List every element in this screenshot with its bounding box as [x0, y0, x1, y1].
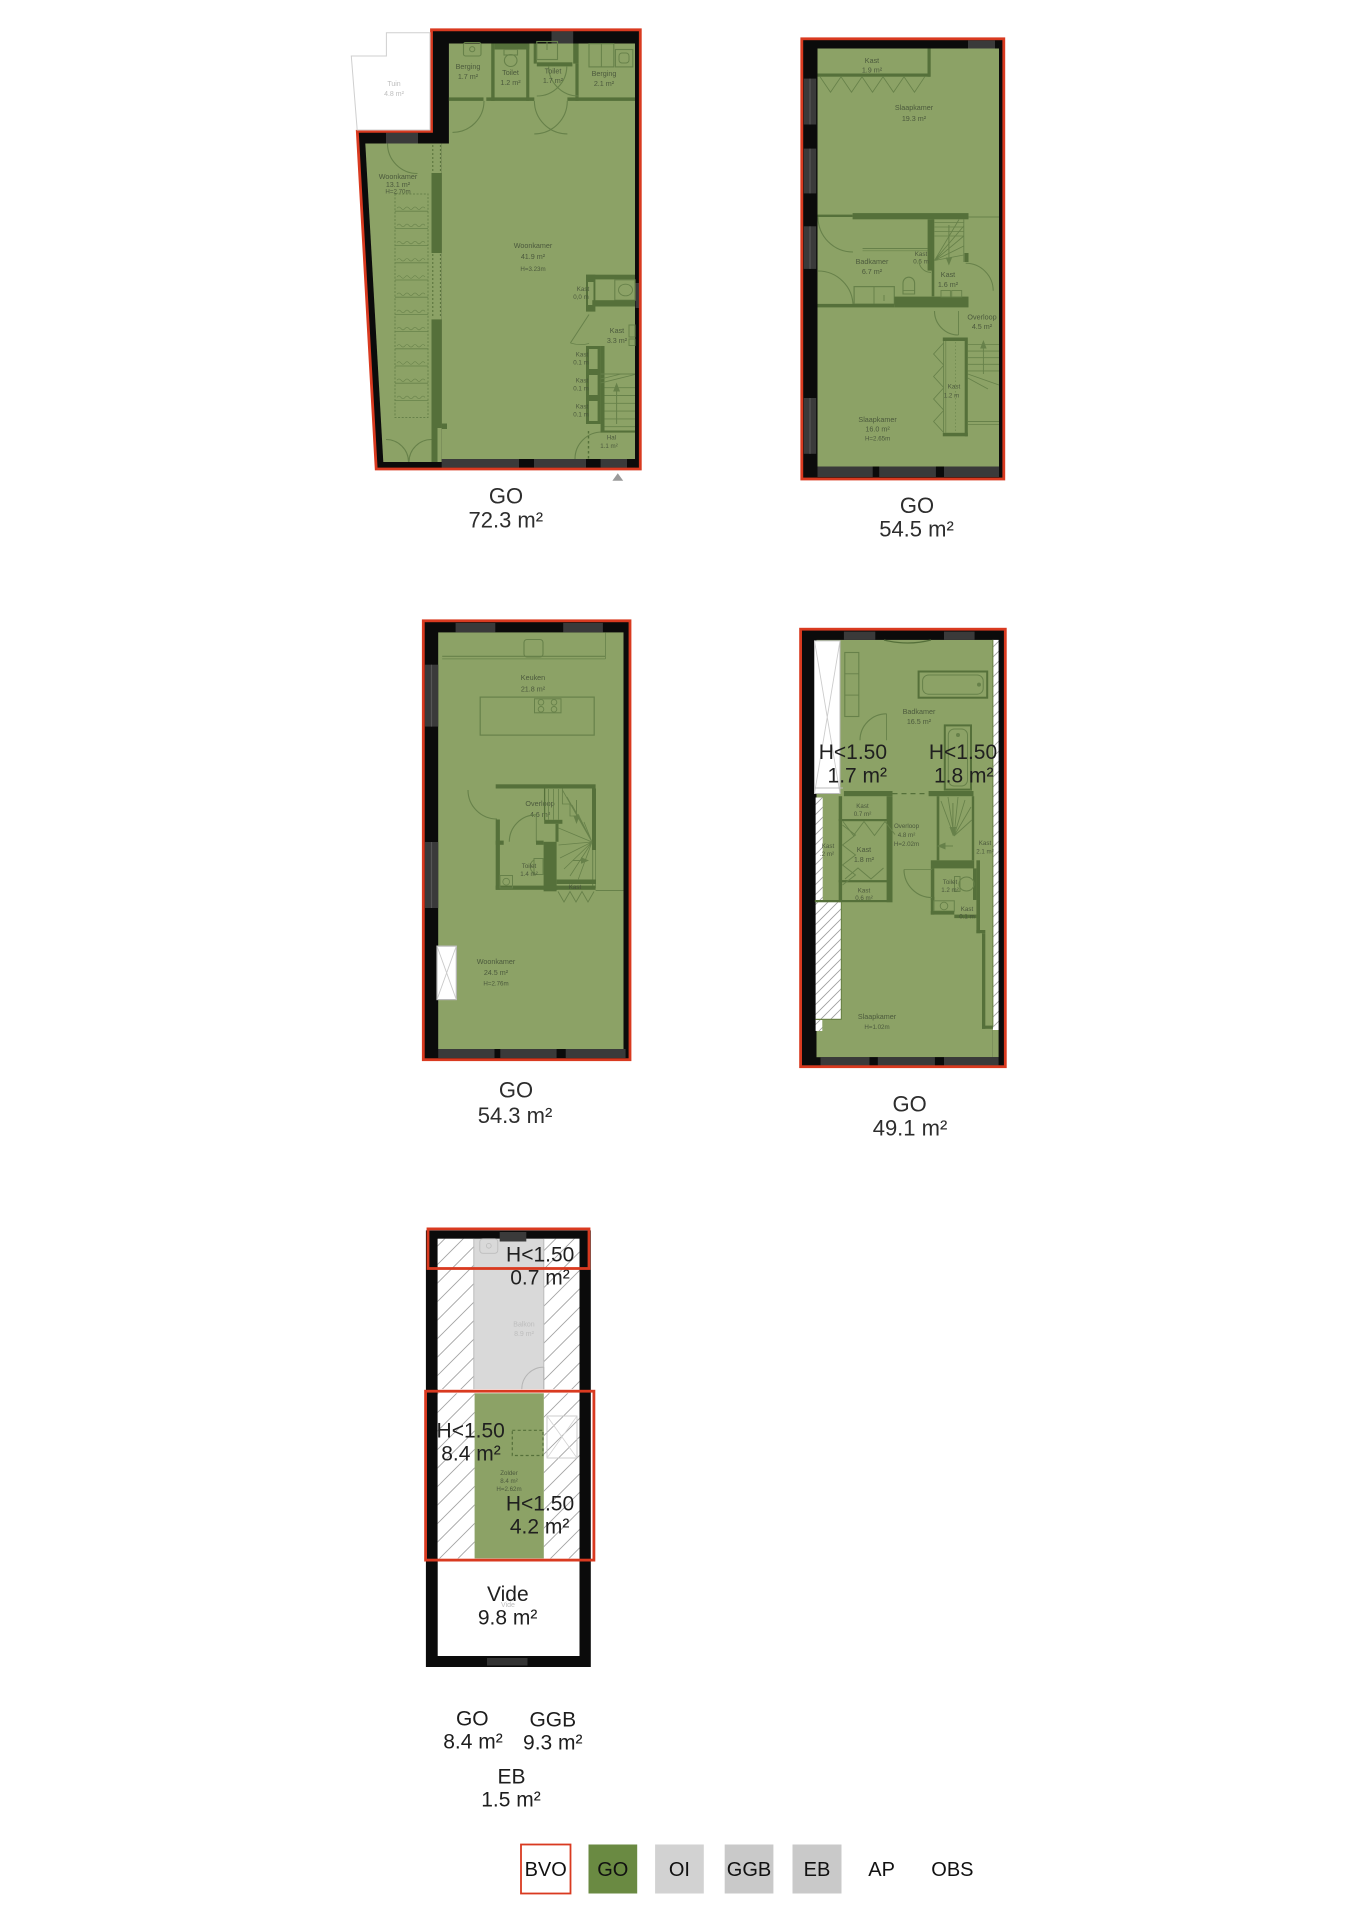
svg-text:0.6 m²: 0.6 m²: [855, 895, 873, 902]
svg-text:Kast: Kast: [865, 56, 879, 65]
svg-text:1.1 m²: 1.1 m²: [600, 443, 618, 450]
svg-text:0.1 m: 0.1 m: [573, 360, 588, 367]
svg-text:4.8 m²: 4.8 m²: [898, 832, 916, 839]
svg-text:Kast: Kast: [979, 840, 992, 847]
svg-text:GO: GO: [456, 1708, 489, 1731]
svg-text:H<1.50: H<1.50: [506, 1244, 574, 1267]
svg-text:Toilet: Toilet: [545, 67, 562, 76]
svg-text:Berging: Berging: [456, 62, 481, 71]
svg-text:1.5 m²: 1.5 m²: [481, 1789, 541, 1812]
svg-text:H=2.76m: H=2.76m: [483, 981, 508, 988]
svg-text:H=2.65m: H=2.65m: [865, 436, 890, 443]
svg-text:4.5 m²: 4.5 m²: [972, 322, 993, 331]
svg-text:0.1 m: 0.1 m: [959, 914, 974, 921]
svg-text:0.1 m: 0.1 m: [573, 412, 588, 419]
svg-text:0.7 m²: 0.7 m²: [854, 811, 872, 818]
svg-text:1.8 m²: 1.8 m²: [934, 764, 994, 787]
svg-text:0,0 m: 0,0 m: [573, 294, 588, 301]
svg-text:Kast: Kast: [577, 286, 590, 293]
svg-text:4.8 m²: 4.8 m²: [384, 91, 405, 98]
svg-text:GO: GO: [900, 493, 934, 518]
svg-text:GO: GO: [597, 1859, 628, 1881]
svg-text:1.4 m²: 1.4 m²: [520, 871, 538, 878]
svg-text:H<1.50: H<1.50: [437, 1420, 505, 1443]
svg-text:GO: GO: [489, 484, 523, 509]
svg-text:Kast: Kast: [915, 251, 928, 258]
svg-text:0.1 m: 0.1 m: [573, 386, 588, 393]
svg-text:EB: EB: [804, 1859, 831, 1881]
svg-text:41.9 m²: 41.9 m²: [521, 252, 546, 261]
svg-text:24.5 m²: 24.5 m²: [484, 968, 509, 977]
svg-text:Vide: Vide: [487, 1583, 529, 1606]
svg-text:OBS: OBS: [931, 1859, 973, 1881]
svg-text:1.2 m²: 1.2 m²: [500, 78, 521, 87]
svg-text:8.4 m²: 8.4 m²: [443, 1731, 503, 1754]
svg-text:Overloop: Overloop: [525, 799, 554, 808]
svg-text:3.3 m²: 3.3 m²: [607, 336, 628, 345]
svg-text:16.5 m²: 16.5 m²: [907, 717, 932, 726]
svg-text:1.6 m²: 1.6 m²: [938, 280, 959, 289]
svg-text:Hal: Hal: [607, 435, 616, 442]
svg-text:GO: GO: [892, 1092, 926, 1117]
svg-text:0.7 m²: 0.7 m²: [510, 1267, 570, 1290]
svg-text:49.1 m²: 49.1 m²: [873, 1115, 948, 1140]
svg-text:2.1 m²: 2.1 m²: [594, 79, 615, 88]
svg-text:Overloop: Overloop: [894, 823, 920, 830]
svg-text:GGB: GGB: [727, 1859, 771, 1881]
svg-text:Slaapkamer: Slaapkamer: [858, 1012, 897, 1021]
svg-text:6.7 m²: 6.7 m²: [862, 267, 883, 276]
svg-text:1.7 m²: 1.7 m²: [828, 764, 888, 787]
svg-text:9.3 m²: 9.3 m²: [523, 1732, 583, 1755]
svg-text:4.2 m²: 4.2 m²: [510, 1516, 570, 1539]
svg-text:Woonkamer: Woonkamer: [477, 957, 516, 966]
svg-text:Toilet: Toilet: [943, 879, 958, 886]
svg-text:1.9 m²: 1.9 m²: [862, 66, 883, 75]
svg-text:H=3.23m: H=3.23m: [520, 266, 545, 273]
svg-text:H<1.50: H<1.50: [506, 1493, 574, 1516]
svg-text:Kast: Kast: [856, 803, 869, 810]
svg-text:8.4 m²: 8.4 m²: [441, 1443, 501, 1466]
svg-text:1.2 m²: 1.2 m²: [941, 887, 959, 894]
svg-text:OI: OI: [669, 1859, 690, 1881]
svg-text:H=2.02m: H=2.02m: [894, 841, 919, 848]
svg-text:GO: GO: [499, 1078, 533, 1103]
svg-text:Kast: Kast: [948, 384, 961, 391]
svg-text:8.4 m²: 8.4 m²: [500, 1478, 518, 1485]
svg-text:54.5 m²: 54.5 m²: [879, 517, 954, 542]
svg-text:Kast: Kast: [857, 845, 871, 854]
svg-text:Kast: Kast: [569, 884, 582, 891]
svg-text:9.8 m²: 9.8 m²: [478, 1607, 538, 1630]
svg-text:Kast: Kast: [576, 352, 589, 359]
svg-text:72.3 m²: 72.3 m²: [469, 508, 544, 533]
svg-text:Kast: Kast: [858, 888, 871, 895]
svg-text:BVO: BVO: [525, 1859, 567, 1881]
svg-text:2.1 m²: 2.1 m²: [976, 849, 994, 856]
svg-text:AP: AP: [868, 1859, 895, 1881]
svg-text:Balkon: Balkon: [513, 1322, 535, 1329]
svg-text:0.6 m: 0.6 m: [913, 259, 928, 266]
svg-text:H=1.02m: H=1.02m: [864, 1024, 889, 1031]
svg-text:1.2 m: 1.2 m: [944, 393, 959, 400]
svg-text:Berging: Berging: [592, 69, 617, 78]
svg-text:54.3 m²: 54.3 m²: [478, 1103, 553, 1128]
svg-text:1.7 m²: 1.7 m²: [458, 72, 479, 81]
svg-text:H=2.70m: H=2.70m: [385, 189, 410, 196]
svg-text:1.7 m²: 1.7 m²: [543, 76, 564, 85]
svg-text:H<1.50: H<1.50: [819, 741, 887, 764]
svg-text:8.9 m²: 8.9 m²: [514, 1331, 535, 1338]
svg-text:EB: EB: [497, 1766, 525, 1789]
svg-text:21.8 m²: 21.8 m²: [521, 685, 546, 694]
svg-text:H<1.50: H<1.50: [929, 741, 997, 764]
svg-text:Overloop: Overloop: [967, 313, 996, 322]
svg-text:19.3 m²: 19.3 m²: [902, 114, 927, 123]
svg-text:Kast: Kast: [610, 326, 624, 335]
svg-text:Kast: Kast: [941, 270, 955, 279]
svg-text:Tuin: Tuin: [387, 81, 400, 88]
svg-text:Keuken: Keuken: [521, 673, 545, 682]
svg-text:16.0 m²: 16.0 m²: [865, 425, 890, 434]
svg-text:Woonkamer: Woonkamer: [514, 241, 553, 250]
svg-text:Badkamer: Badkamer: [856, 257, 889, 266]
svg-text:Badkamer: Badkamer: [903, 707, 936, 716]
svg-text:Kast: Kast: [822, 843, 835, 850]
svg-text:Kast: Kast: [576, 404, 589, 411]
svg-text:.2 m²: .2 m²: [820, 851, 834, 858]
svg-text:GGB: GGB: [529, 1709, 576, 1732]
svg-text:Toilet: Toilet: [522, 863, 537, 870]
svg-text:Slaapkamer: Slaapkamer: [895, 103, 934, 112]
svg-text:Kast: Kast: [576, 378, 589, 385]
svg-text:Kast: Kast: [961, 906, 974, 913]
svg-text:Slaapkamer: Slaapkamer: [858, 415, 897, 424]
svg-text:1.8 m²: 1.8 m²: [854, 855, 875, 864]
svg-text:Toilet: Toilet: [502, 68, 519, 77]
svg-text:Zolder: Zolder: [500, 1470, 518, 1477]
